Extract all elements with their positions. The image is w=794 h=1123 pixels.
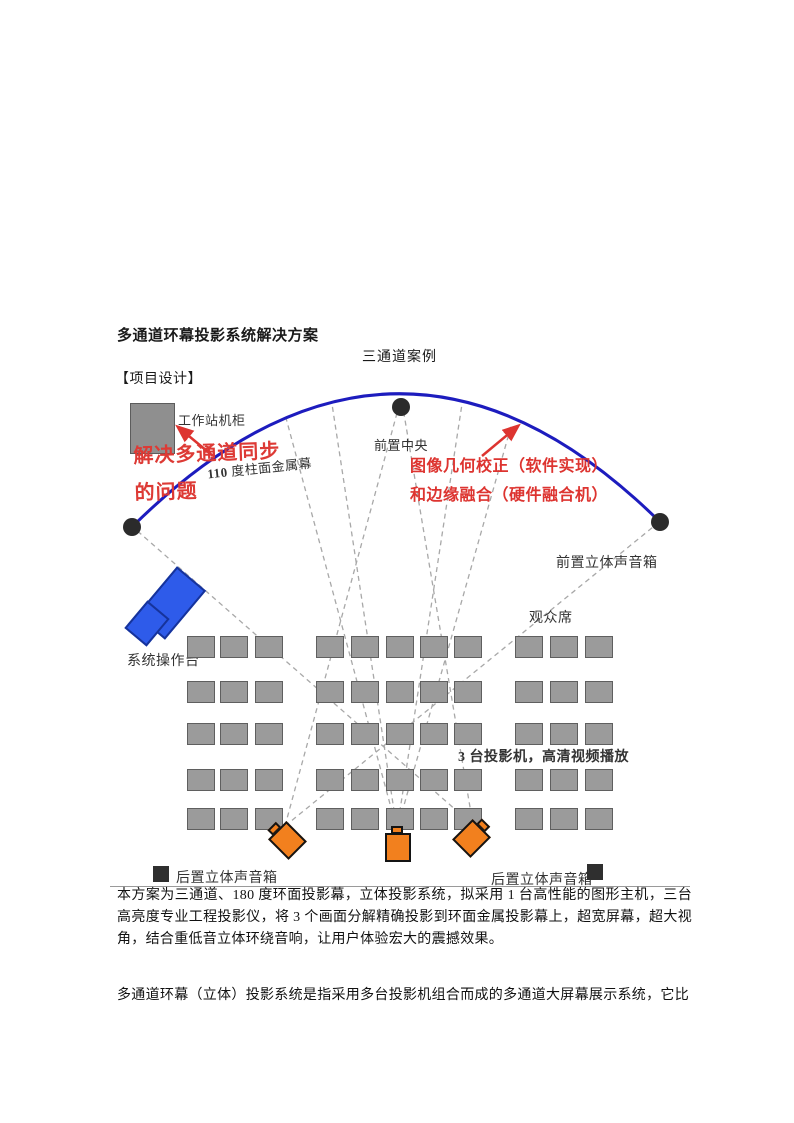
audience-seat — [454, 723, 482, 745]
audience-seat — [220, 769, 248, 791]
correction-annotation-line1: 图像几何校正（软件实现） — [410, 452, 608, 481]
audience-seat — [351, 681, 379, 703]
audience-seat — [386, 769, 414, 791]
audience-seat — [316, 681, 344, 703]
audience-seat — [220, 723, 248, 745]
audience-seat — [420, 681, 448, 703]
audience-seat — [187, 808, 215, 830]
audience-seat — [187, 769, 215, 791]
audience-seat — [454, 636, 482, 658]
audience-seat — [316, 769, 344, 791]
audience-seat — [515, 636, 543, 658]
rear-speaker-right-icon — [587, 864, 603, 880]
diagram-caption: 三通道案例 — [362, 346, 437, 366]
audience-seat — [585, 681, 613, 703]
section-label: 【项目设计】 — [115, 368, 202, 388]
audience-seat — [420, 808, 448, 830]
front-speaker-label: 前置立体声音箱 — [556, 552, 658, 572]
audience-seat — [454, 681, 482, 703]
audience-seat — [351, 636, 379, 658]
audience-seat — [351, 808, 379, 830]
document-page: 多通道环幕投影系统解决方案 三通道案例 【项目设计】 — [0, 0, 794, 1123]
center-screen-speaker-dot — [392, 398, 410, 416]
left-screen-speaker-dot — [123, 518, 141, 536]
paragraph-solution: 本方案为三通道、180 度环面投影幕，立体投影系统，拟采用 1 台高性能的图形主… — [117, 885, 692, 951]
audience-seat — [255, 723, 283, 745]
audience-seat — [585, 723, 613, 745]
audience-seat — [386, 636, 414, 658]
audience-seat — [454, 769, 482, 791]
audience-seat — [585, 769, 613, 791]
audience-seat — [550, 681, 578, 703]
audience-seat — [420, 723, 448, 745]
audience-seat — [255, 636, 283, 658]
audience-seat — [316, 636, 344, 658]
audience-seat — [220, 808, 248, 830]
audience-seat — [255, 681, 283, 703]
audience-seat — [515, 769, 543, 791]
audience-seat — [420, 769, 448, 791]
audience-seat — [220, 681, 248, 703]
audience-seat — [386, 681, 414, 703]
audience-seat — [386, 723, 414, 745]
rear-speaker-left-label: 后置立体声音箱 — [176, 867, 278, 887]
audience-seat — [255, 769, 283, 791]
audience-seat — [220, 636, 248, 658]
correction-annotation: 图像几何校正（软件实现） 和边缘融合（硬件融合机） — [410, 452, 608, 510]
audience-seat — [187, 681, 215, 703]
audience-seat — [550, 723, 578, 745]
audience-seat — [585, 636, 613, 658]
audience-seat — [316, 808, 344, 830]
audience-seat — [550, 636, 578, 658]
audience-label: 观众席 — [529, 607, 573, 627]
audience-seat — [515, 723, 543, 745]
audience-seat — [187, 636, 215, 658]
paragraph-definition: 多通道环幕（立体）投影系统是指采用多台投影机组合而成的多通道大屏幕展示系统，它比 — [117, 985, 692, 1007]
page-title: 多通道环幕投影系统解决方案 — [117, 324, 319, 345]
audience-seat — [351, 769, 379, 791]
audience-seat — [585, 808, 613, 830]
correction-annotation-line2: 和边缘融合（硬件融合机） — [410, 481, 608, 510]
projector-body — [385, 833, 411, 862]
projectors-label: 3 台投影机，高清视频播放 — [458, 746, 629, 766]
audience-seat — [187, 723, 215, 745]
rear-speaker-left-icon — [153, 866, 169, 882]
audience-seat — [515, 681, 543, 703]
right-screen-speaker-dot — [651, 513, 669, 531]
workstation-cabinet-label: 工作站机柜 — [178, 410, 246, 429]
audience-seat — [550, 769, 578, 791]
projector-center — [385, 826, 411, 862]
audience-seat — [316, 723, 344, 745]
audience-seat — [515, 808, 543, 830]
audience-seat — [420, 636, 448, 658]
audience-seat — [550, 808, 578, 830]
screen-label-degree: 110 — [207, 464, 229, 481]
audience-seat — [351, 723, 379, 745]
projection-system-diagram: 工作站机柜 解决多通道同步 的问题 110 度柱面金属幕 前置中央 图像几何校正… — [110, 390, 690, 887]
